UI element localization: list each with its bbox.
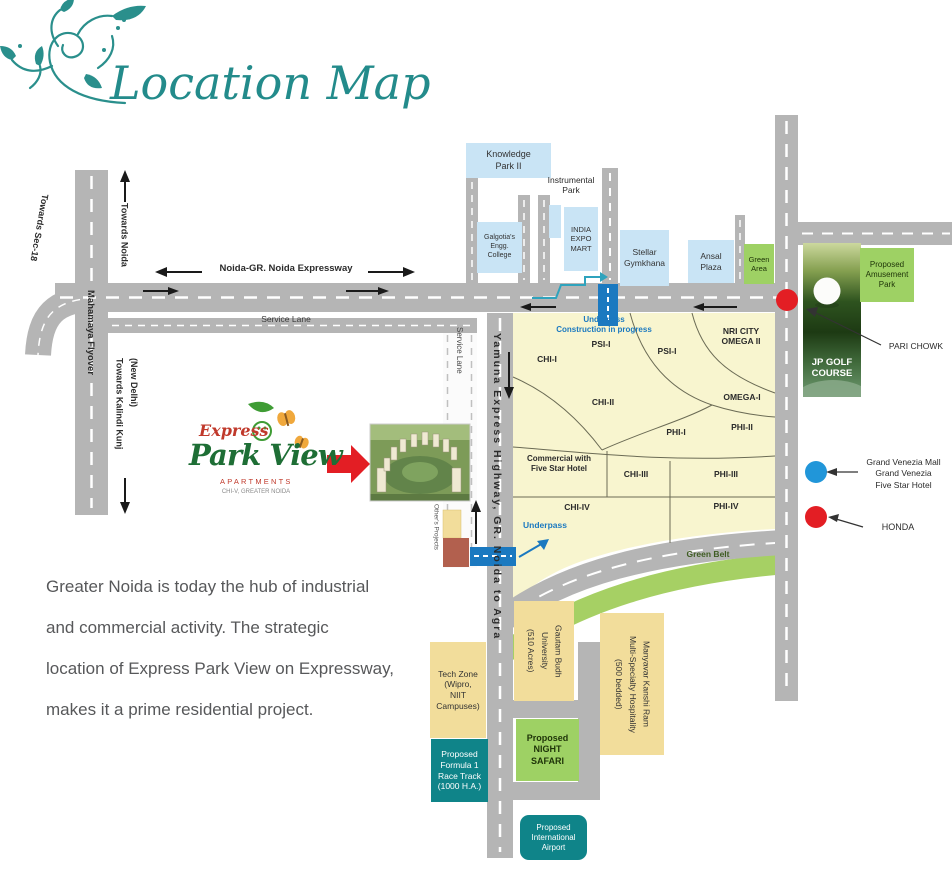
underpass-construction-label: Underpass Construction in progress [544, 315, 664, 334]
yamuna-highway-label: Yamuna Express Highway, GR. Noida to Agr… [488, 333, 505, 640]
ansal-plaza-box: Ansal Plaza [688, 240, 734, 283]
logo-apartments: APARTMENTS [220, 477, 290, 486]
logo-location: CHI-V, GREATER NOIDA [220, 489, 292, 495]
description-text: Greater Noida is today the hub of indust… [46, 566, 446, 730]
pari-chowk-label: PARI CHOWK [883, 341, 949, 351]
knowledge-park-box: Knowledge Park II [466, 143, 551, 178]
sector-phi2: PHI-II [718, 422, 766, 432]
small-plot-box [549, 205, 561, 238]
green-belt-label: Green Belt [682, 549, 734, 559]
service-lane-vertical-label: Service Lane [452, 327, 465, 374]
sector-chi1: CHI-I [526, 354, 568, 364]
towards-noida-label: Towards Noida [117, 203, 131, 267]
tech-zone-box: Tech Zone (Wipro, NIIT Campuses) [430, 642, 486, 738]
underpass-label: Underpass [517, 520, 573, 530]
others-projects-label: Other's Projects [430, 504, 440, 550]
sector-phi3: PHI-III [702, 469, 750, 479]
sector-psi1a: PSI-I [581, 339, 621, 349]
grand-venezia-marker [805, 461, 827, 483]
grand-venezia-label: Grand Venezia Mall Grand Venezia Five St… [856, 457, 951, 491]
safari-road-upper [513, 700, 600, 718]
manyavar-box: Manyavar Kanshi Ram Multi-Specialty Hosp… [600, 613, 664, 755]
sector-omega1: OMEGA-I [714, 392, 770, 402]
formula1-box: Proposed Formula 1 Race Track (1000 H.A.… [431, 739, 488, 802]
honda-marker [805, 506, 827, 528]
night-safari-box: Proposed NIGHT SAFARI [516, 719, 579, 781]
instrumental-park-label: Instrumental Park [536, 175, 606, 195]
sector-chi2: CHI-II [578, 397, 628, 407]
sector-chi4: CHI-IV [553, 502, 601, 512]
golf-ball-icon [814, 278, 841, 305]
gautam-budh-label: Gautam Budh University (510 Acres) [524, 625, 565, 677]
amusement-park-box: Proposed Amusement Park [860, 248, 914, 302]
service-lane-label: Service Lane [250, 314, 322, 324]
sector-phi4: PHI-IV [702, 501, 750, 511]
jp-golf-label: JP GOLF COURSE [802, 357, 862, 380]
logo-park-view: Park View [189, 438, 342, 472]
location-map-page: Location Map Greater Noida is today the … [0, 0, 952, 870]
gautam-budh-box: Gautam Budh University (510 Acres) [514, 601, 574, 701]
airport-box: Proposed International Airport [520, 815, 587, 860]
honda-label: HONDA [866, 522, 930, 533]
sector-nri-city: NRI CITY OMEGA II [710, 326, 772, 346]
pari-chowk-marker [776, 289, 798, 311]
safari-road-lower [513, 782, 600, 800]
mahamaya-flyover-label: Mahamaya Flyover [83, 290, 98, 375]
galgotias-box: Galgotia's Engg. College [477, 222, 522, 273]
india-expo-mart-box: INDIA EXPO MART [564, 207, 598, 271]
page-title: Location Map [110, 56, 431, 110]
apartment-aerial-image [370, 424, 470, 501]
sector-commercial: Commercial with Five Star Hotel [513, 454, 605, 473]
sector-phi1: PHI-I [653, 427, 699, 437]
stellar-gymkhana-box: Stellar Gymkhana [620, 230, 669, 286]
sector-chi3: CHI-III [613, 469, 659, 479]
green-area-box: Green Area [744, 244, 774, 284]
expressway-label: Noida-GR. Noida Expressway [212, 263, 360, 274]
sector-psi1b: PSI-I [646, 346, 688, 356]
manyavar-label: Manyavar Kanshi Ram Multi-Specialty Hosp… [612, 636, 653, 733]
safari-road-vertical [578, 642, 600, 800]
kalindi-kunj-label: (New Delhi) Towards Kalindi Kunj [112, 358, 141, 449]
